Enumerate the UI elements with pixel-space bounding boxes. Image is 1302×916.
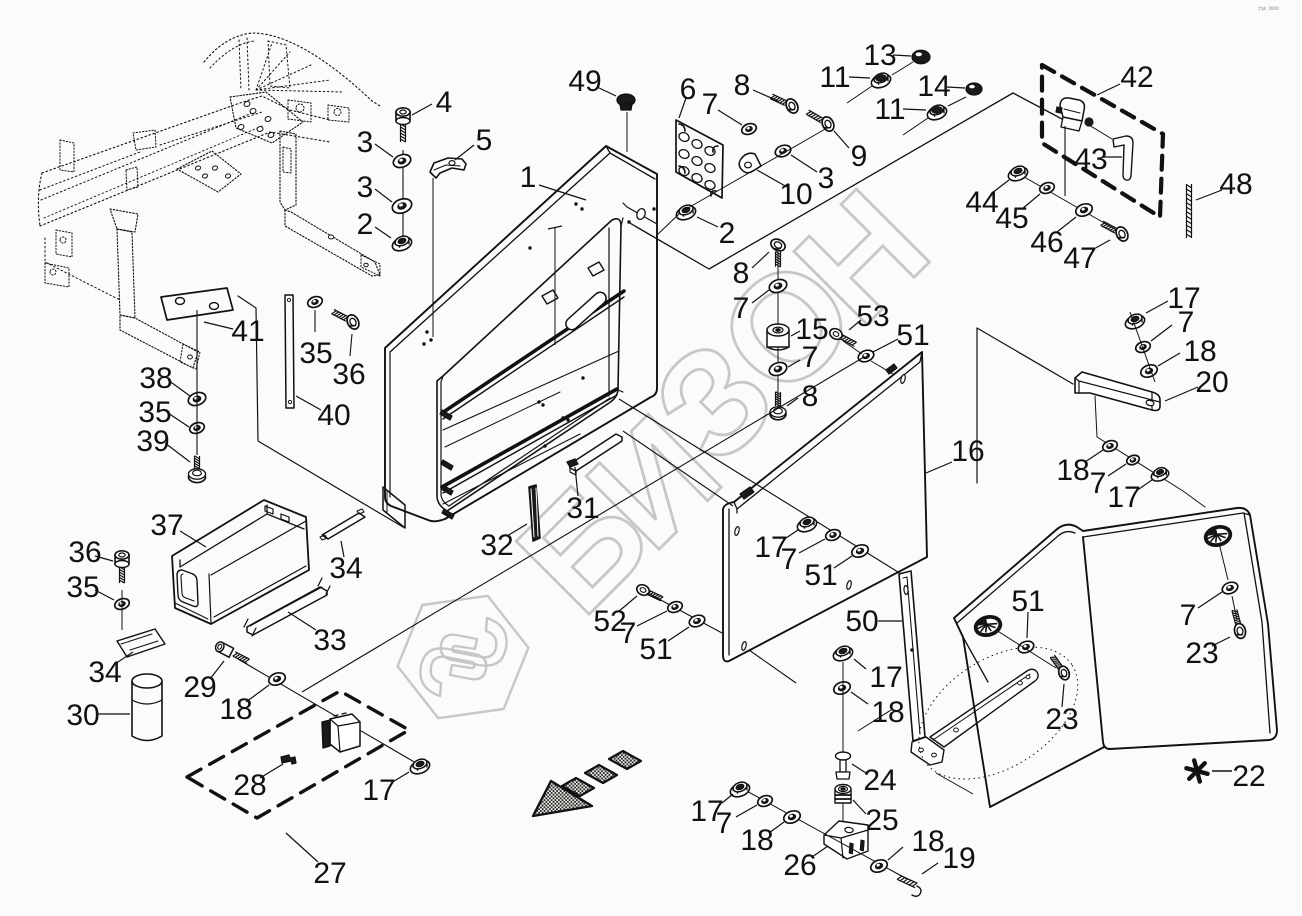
svg-text:39: 39: [136, 425, 169, 458]
svg-text:51: 51: [804, 559, 837, 592]
svg-text:7: 7: [733, 292, 750, 325]
svg-text:51: 51: [896, 319, 929, 352]
svg-text:9: 9: [851, 140, 868, 173]
svg-text:7: 7: [702, 88, 719, 121]
svg-text:16: 16: [951, 435, 984, 468]
svg-text:3: 3: [818, 162, 835, 195]
svg-text:5: 5: [476, 124, 493, 157]
svg-text:8: 8: [734, 69, 751, 102]
svg-text:23: 23: [1185, 637, 1218, 670]
svg-text:20: 20: [1195, 366, 1228, 399]
svg-text:40: 40: [317, 399, 350, 432]
svg-text:35: 35: [299, 337, 332, 370]
svg-text:48: 48: [1219, 168, 1252, 201]
svg-text:4: 4: [436, 86, 453, 119]
svg-text:2: 2: [719, 217, 736, 250]
svg-text:22: 22: [1232, 760, 1265, 793]
svg-text:23: 23: [1045, 703, 1078, 736]
svg-text:38: 38: [139, 362, 172, 395]
svg-text:7: 7: [802, 341, 819, 374]
svg-text:32: 32: [480, 529, 513, 562]
svg-text:41: 41: [231, 315, 264, 348]
svg-text:26: 26: [783, 849, 816, 882]
svg-text:47: 47: [1063, 242, 1096, 275]
svg-text:44: 44: [965, 186, 998, 219]
svg-text:29: 29: [183, 671, 216, 704]
svg-text:50: 50: [845, 605, 878, 638]
svg-text:7: 7: [620, 617, 637, 650]
svg-text:42: 42: [1120, 61, 1153, 94]
svg-text:17: 17: [869, 661, 902, 694]
svg-text:3: 3: [357, 126, 374, 159]
svg-text:™ ººº: ™ ººº: [1257, 5, 1279, 15]
svg-text:10: 10: [779, 178, 812, 211]
svg-text:11: 11: [819, 61, 850, 94]
svg-text:19: 19: [942, 842, 975, 875]
svg-text:17: 17: [362, 774, 395, 807]
svg-text:51: 51: [639, 633, 672, 666]
svg-text:18: 18: [1056, 454, 1089, 487]
svg-text:31: 31: [566, 492, 599, 525]
svg-text:37: 37: [150, 509, 183, 542]
svg-text:53: 53: [856, 300, 889, 333]
svg-text:7: 7: [1180, 599, 1197, 632]
svg-text:18: 18: [740, 824, 773, 857]
svg-text:30: 30: [66, 699, 99, 732]
svg-text:7: 7: [781, 543, 798, 576]
svg-text:34: 34: [329, 552, 362, 585]
svg-text:3: 3: [357, 171, 374, 204]
svg-text:24: 24: [863, 764, 896, 797]
svg-text:33: 33: [313, 624, 346, 657]
svg-text:8: 8: [733, 257, 750, 290]
svg-text:1: 1: [520, 161, 537, 194]
svg-text:45: 45: [995, 202, 1028, 235]
svg-text:18: 18: [1183, 335, 1216, 368]
svg-text:27: 27: [313, 857, 346, 890]
svg-text:18: 18: [219, 693, 252, 726]
svg-text:25: 25: [865, 804, 898, 837]
svg-text:49: 49: [568, 65, 601, 98]
svg-text:18: 18: [911, 825, 944, 858]
svg-text:7: 7: [716, 807, 733, 840]
svg-text:34: 34: [88, 656, 121, 689]
svg-text:17: 17: [1107, 481, 1140, 514]
svg-text:36: 36: [68, 536, 101, 569]
svg-text:8: 8: [802, 380, 819, 413]
svg-text:35: 35: [66, 571, 99, 604]
svg-text:14: 14: [917, 70, 950, 103]
svg-text:51: 51: [1011, 585, 1044, 618]
svg-text:11: 11: [874, 93, 905, 126]
svg-text:6: 6: [680, 73, 697, 106]
svg-text:7: 7: [1090, 467, 1107, 500]
svg-text:43: 43: [1074, 143, 1107, 176]
svg-text:46: 46: [1030, 226, 1063, 259]
svg-text:2: 2: [357, 208, 374, 241]
svg-text:36: 36: [332, 358, 365, 391]
svg-text:13: 13: [863, 39, 896, 72]
svg-text:28: 28: [233, 769, 266, 802]
